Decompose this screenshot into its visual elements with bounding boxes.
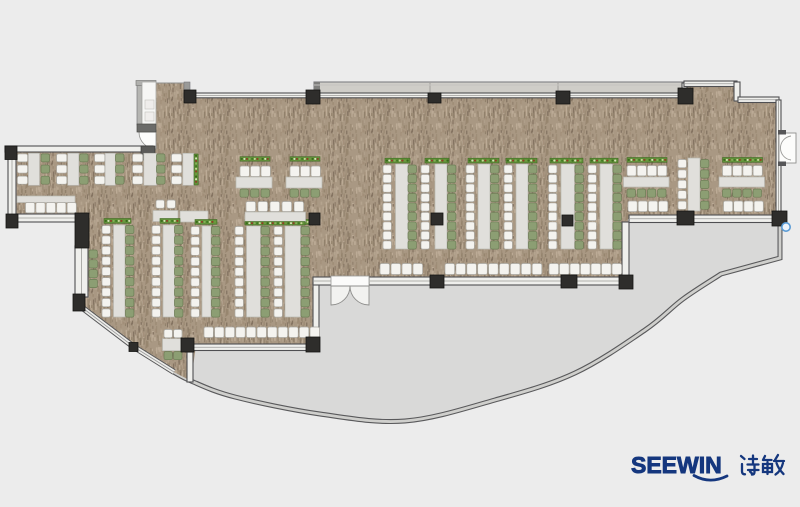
svg-text:SEEWIN: SEEWIN <box>631 452 722 478</box>
